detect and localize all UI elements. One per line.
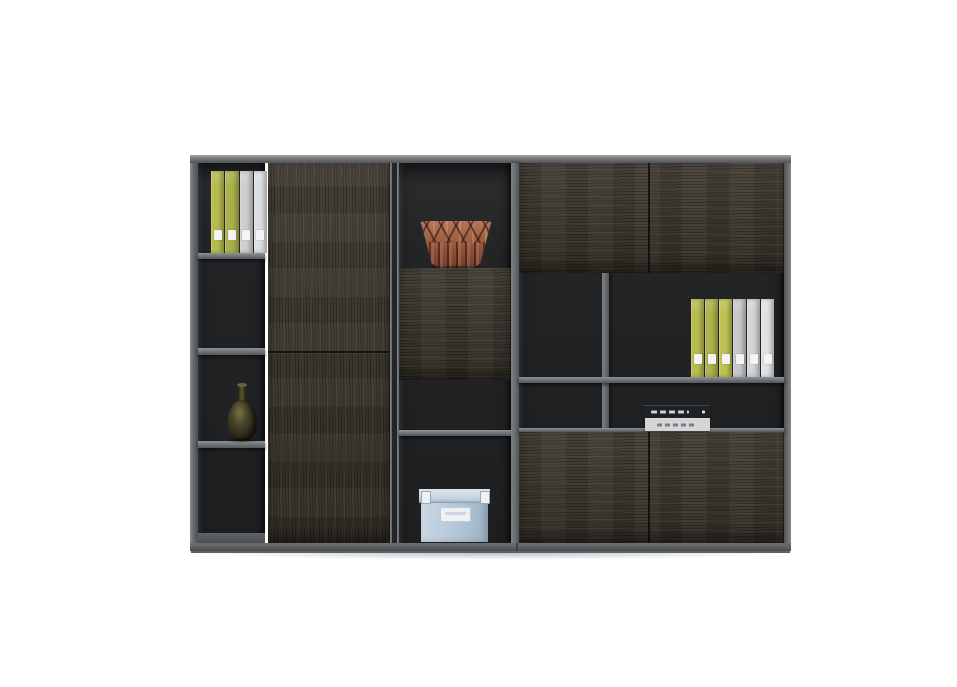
shelf-divider — [602, 273, 609, 433]
binder — [747, 299, 760, 377]
binder — [719, 299, 732, 377]
bottle-vase — [227, 383, 257, 441]
tall-wood-door — [268, 163, 390, 543]
left-column-base — [198, 533, 265, 543]
shelf — [198, 348, 265, 355]
floor-shadow — [196, 553, 785, 560]
unit-partition — [390, 163, 399, 543]
unit-partition — [511, 163, 519, 543]
binder — [761, 299, 774, 377]
shelf — [198, 253, 265, 259]
binder — [733, 299, 746, 377]
cabinet-left-wall — [190, 163, 198, 543]
shelf — [399, 430, 511, 436]
binder — [254, 171, 267, 253]
door-seam — [648, 163, 650, 273]
product-photo-scene — [0, 0, 957, 687]
binder — [705, 299, 718, 377]
storage-box — [419, 489, 490, 542]
center-wood-panel — [399, 268, 511, 380]
cabinet-right-wall — [784, 163, 791, 543]
binder — [691, 299, 704, 377]
binder — [225, 171, 238, 253]
top-doors — [519, 163, 784, 273]
vase-shadow — [224, 438, 260, 443]
door-seam — [268, 351, 390, 353]
plinth-seam — [516, 543, 518, 551]
binder-group-left — [211, 171, 267, 253]
plinth — [190, 543, 791, 551]
book-black — [643, 405, 710, 418]
cabinet-top-rail — [190, 155, 791, 163]
shelf — [519, 377, 784, 383]
binder — [240, 171, 253, 253]
book-white — [645, 418, 710, 431]
binder — [211, 171, 224, 253]
binder-group-right — [691, 299, 774, 377]
bottom-doors — [519, 432, 784, 543]
door-seam — [648, 432, 650, 543]
